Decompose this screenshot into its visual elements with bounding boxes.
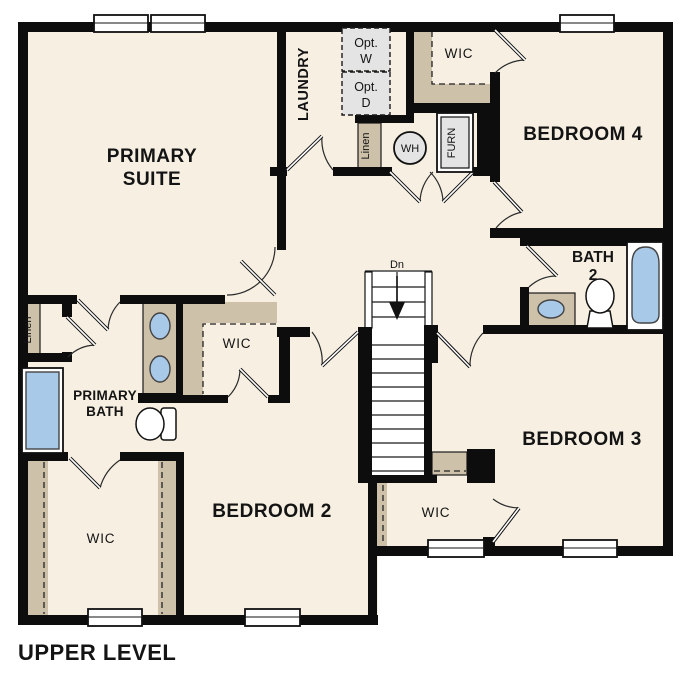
wic-bedroom2-label: WIC [87, 531, 116, 546]
furnace-label: FURN [446, 128, 458, 159]
toilet-icon [586, 279, 614, 328]
sink-icon [538, 300, 564, 318]
stairs [365, 270, 432, 483]
bedroom4-label: BEDROOM 4 [523, 124, 643, 145]
shower-icon [22, 368, 63, 453]
laundry-label: LAUNDRY [296, 47, 312, 121]
bedroom2-label: BEDROOM 2 [212, 501, 332, 522]
wic-bedroom4-label: WIC [445, 46, 474, 61]
floor-plan-upper-level: PRIMARY SUITE LAUNDRY Opt. W Opt. D WIC … [0, 0, 687, 687]
window [151, 15, 205, 32]
opt-washer-label: Opt. [354, 36, 378, 50]
bedroom3-label: BEDROOM 3 [522, 429, 642, 450]
sink-icon [150, 356, 170, 382]
window [560, 15, 614, 32]
page-title: UPPER LEVEL [18, 640, 176, 665]
sink-icon [150, 313, 170, 339]
opt-washer-label: W [360, 52, 372, 66]
bath2-label: BATH [572, 249, 614, 266]
primary-suite-label: SUITE [123, 169, 181, 190]
water-heater-label: WH [401, 143, 419, 155]
toilet-icon [136, 408, 176, 440]
linen-primary-label: Linen [22, 317, 34, 344]
primary-bath-label: PRIMARY [73, 388, 137, 403]
window [563, 540, 617, 557]
window [88, 609, 142, 626]
bath2-label: 2 [589, 267, 598, 284]
linen-hall-label: Linen [360, 133, 372, 160]
bathtub-icon [627, 242, 663, 330]
wic-bedroom3-label: WIC [422, 505, 451, 520]
stairs-dn-label: Dn [390, 259, 404, 271]
wic-primary-label: WIC [223, 336, 252, 351]
primary-bath-label: BATH [86, 404, 124, 419]
window [245, 609, 300, 626]
primary-suite-label: PRIMARY [107, 146, 197, 167]
floor-plan-drawing: PRIMARY SUITE LAUNDRY Opt. W Opt. D WIC … [0, 0, 687, 687]
opt-dryer-label: Opt. [354, 80, 378, 94]
window [428, 540, 484, 557]
window [94, 15, 148, 32]
opt-dryer-label: D [361, 96, 370, 110]
